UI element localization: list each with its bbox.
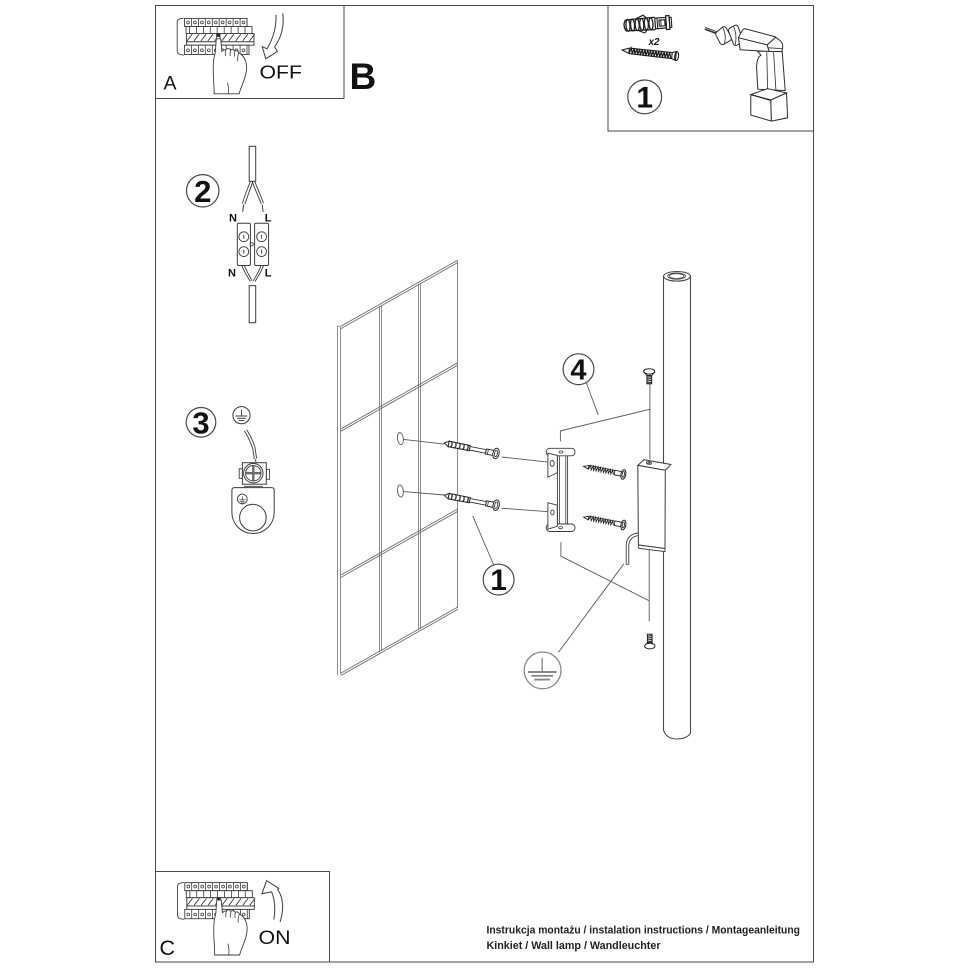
svg-text:B: B	[350, 56, 377, 97]
svg-text:A: A	[164, 73, 177, 95]
svg-text:x2: x2	[648, 37, 660, 48]
svg-text:N: N	[229, 213, 237, 225]
svg-text:Instrukcja montażu / instalati: Instrukcja montażu / instalation instruc…	[487, 924, 801, 936]
svg-text:ON: ON	[259, 927, 291, 949]
svg-text:3: 3	[192, 405, 209, 440]
svg-text:4: 4	[570, 355, 586, 387]
svg-text:OFF: OFF	[260, 62, 303, 83]
svg-text:2: 2	[194, 174, 211, 209]
svg-text:Kinkiet / Wall lamp / Wandleuc: Kinkiet / Wall lamp / Wandleuchter	[487, 940, 662, 952]
svg-text:1: 1	[636, 82, 653, 115]
svg-text:N: N	[228, 268, 236, 280]
svg-text:C: C	[160, 936, 176, 960]
svg-text:1: 1	[490, 564, 507, 597]
svg-text:L: L	[265, 268, 272, 280]
